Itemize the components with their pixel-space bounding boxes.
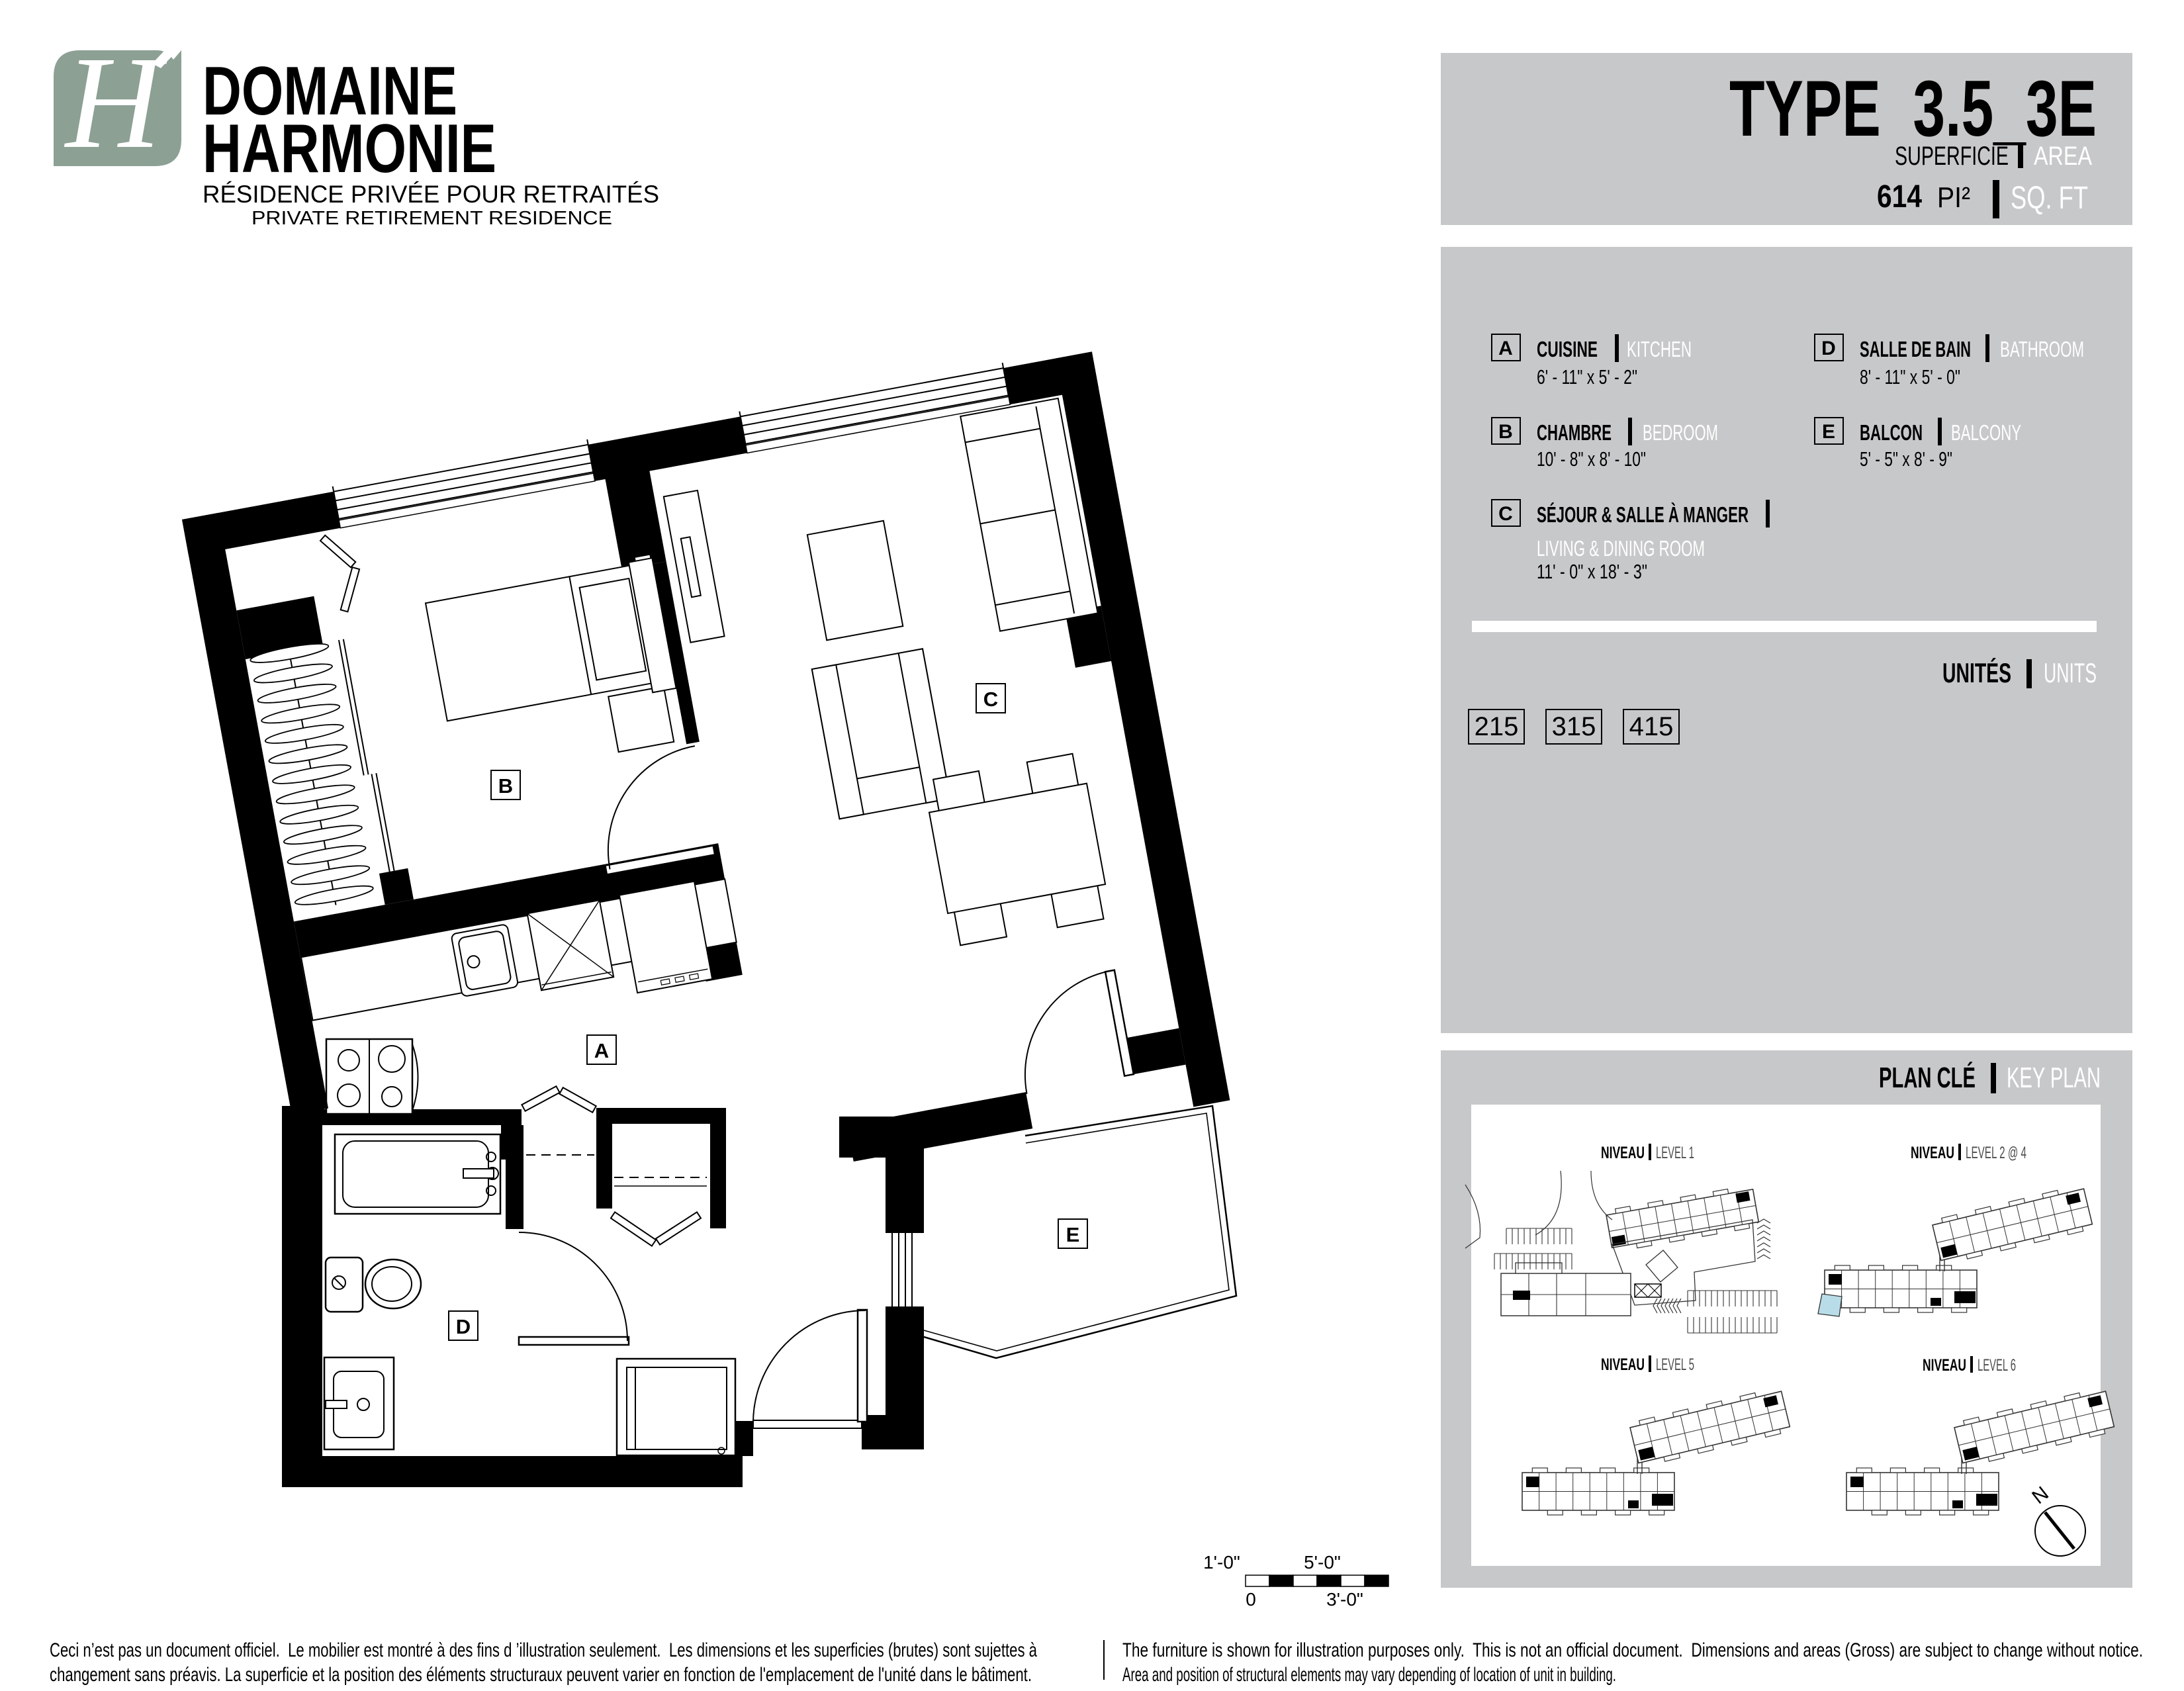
svg-text:3'-0": 3'-0" [1326, 1589, 1363, 1610]
svg-text:BEDROOM: BEDROOM [1643, 420, 1718, 445]
svg-text:A: A [1498, 338, 1513, 359]
svg-text:215: 215 [1475, 712, 1519, 741]
svg-text:1'-0": 1'-0" [1203, 1552, 1240, 1573]
svg-text:5' - 5" x 8' - 9": 5' - 5" x 8' - 9" [1860, 447, 1952, 471]
svg-text:Area and position of structura: Area and position of structural elements… [1122, 1664, 1616, 1686]
svg-text:CUISINE: CUISINE [1537, 337, 1598, 361]
svg-text:C: C [1498, 503, 1513, 525]
svg-text:LIVING & DINING ROOM: LIVING & DINING ROOM [1537, 536, 1705, 561]
svg-text:HARMONIE: HARMONIE [203, 111, 496, 187]
svg-text:KITCHEN: KITCHEN [1627, 337, 1692, 361]
svg-text:RÉSIDENCE PRIVÉE POUR RETRAITÉ: RÉSIDENCE PRIVÉE POUR RETRAITÉS [203, 181, 659, 208]
svg-text:NIVEAU: NIVEAU [1911, 1144, 1954, 1162]
svg-text:LEVEL 2 @ 4: LEVEL 2 @ 4 [1966, 1144, 2026, 1162]
svg-text:NIVEAU: NIVEAU [1601, 1144, 1645, 1162]
svg-text:PRIVATE RETIREMENT RESIDENCE: PRIVATE RETIREMENT RESIDENCE [251, 208, 612, 229]
svg-text:LEVEL 5: LEVEL 5 [1656, 1355, 1694, 1374]
svg-text:BALCONY: BALCONY [1951, 420, 2021, 445]
svg-text:LEVEL 6: LEVEL 6 [1978, 1356, 2016, 1375]
svg-text:E: E [1822, 421, 1835, 443]
svg-text:UNITS: UNITS [2044, 657, 2097, 688]
svg-text:NIVEAU: NIVEAU [1923, 1356, 1966, 1375]
svg-text:NIVEAU: NIVEAU [1601, 1355, 1645, 1374]
svg-text:AREA: AREA [2034, 142, 2092, 171]
svg-text:A: A [594, 1039, 609, 1062]
svg-text:0: 0 [1246, 1589, 1256, 1610]
svg-text:BATHROOM: BATHROOM [2000, 337, 2084, 361]
svg-text:changement sans préavis. La su: changement sans préavis. La superficie e… [50, 1664, 1032, 1686]
svg-text:Ceci n’est pas un document off: Ceci n’est pas un document officiel. Le … [50, 1639, 1037, 1661]
svg-text:8' - 11" x 5' - 0": 8' - 11" x 5' - 0" [1860, 365, 1960, 388]
svg-text:SALLE DE BAIN: SALLE DE BAIN [1860, 337, 1971, 361]
svg-text:UNITÉS: UNITÉS [1942, 657, 2011, 688]
svg-text:KEY PLAN: KEY PLAN [2007, 1062, 2101, 1094]
svg-text:11' - 0" x 18' - 3": 11' - 0" x 18' - 3" [1537, 560, 1647, 583]
svg-text:SQ. FT: SQ. FT [2011, 181, 2088, 216]
svg-text:The furniture is shown for ill: The furniture is shown for illustration … [1122, 1639, 2143, 1661]
svg-text:PI²: PI² [1937, 181, 1970, 214]
svg-text:PLAN CLÉ: PLAN CLÉ [1879, 1061, 1976, 1094]
svg-text:415: 415 [1629, 712, 1674, 741]
svg-text:C: C [983, 688, 998, 711]
svg-text:D: D [456, 1315, 471, 1338]
svg-text:SÉJOUR & SALLE À MANGER: SÉJOUR & SALLE À MANGER [1537, 502, 1749, 527]
svg-text:H: H [64, 30, 167, 176]
svg-text:BALCON: BALCON [1860, 420, 1923, 445]
svg-text:10' - 8" x 8' - 10": 10' - 8" x 8' - 10" [1537, 447, 1646, 471]
svg-text:CHAMBRE: CHAMBRE [1537, 420, 1612, 445]
svg-text:SUPERFICIE: SUPERFICIE [1895, 142, 2009, 171]
svg-text:B: B [498, 774, 513, 798]
svg-text:TYPE 3.5_3E: TYPE 3.5_3E [1729, 64, 2097, 153]
svg-text:614: 614 [1877, 179, 1922, 214]
svg-text:6' - 11" x 5' - 2": 6' - 11" x 5' - 2" [1537, 365, 1637, 388]
svg-text:5'-0": 5'-0" [1304, 1552, 1341, 1573]
svg-text:E: E [1066, 1223, 1080, 1246]
svg-text:B: B [1498, 421, 1513, 443]
svg-text:D: D [1821, 338, 1836, 359]
svg-text:315: 315 [1552, 712, 1596, 741]
svg-text:LEVEL 1: LEVEL 1 [1656, 1144, 1694, 1162]
